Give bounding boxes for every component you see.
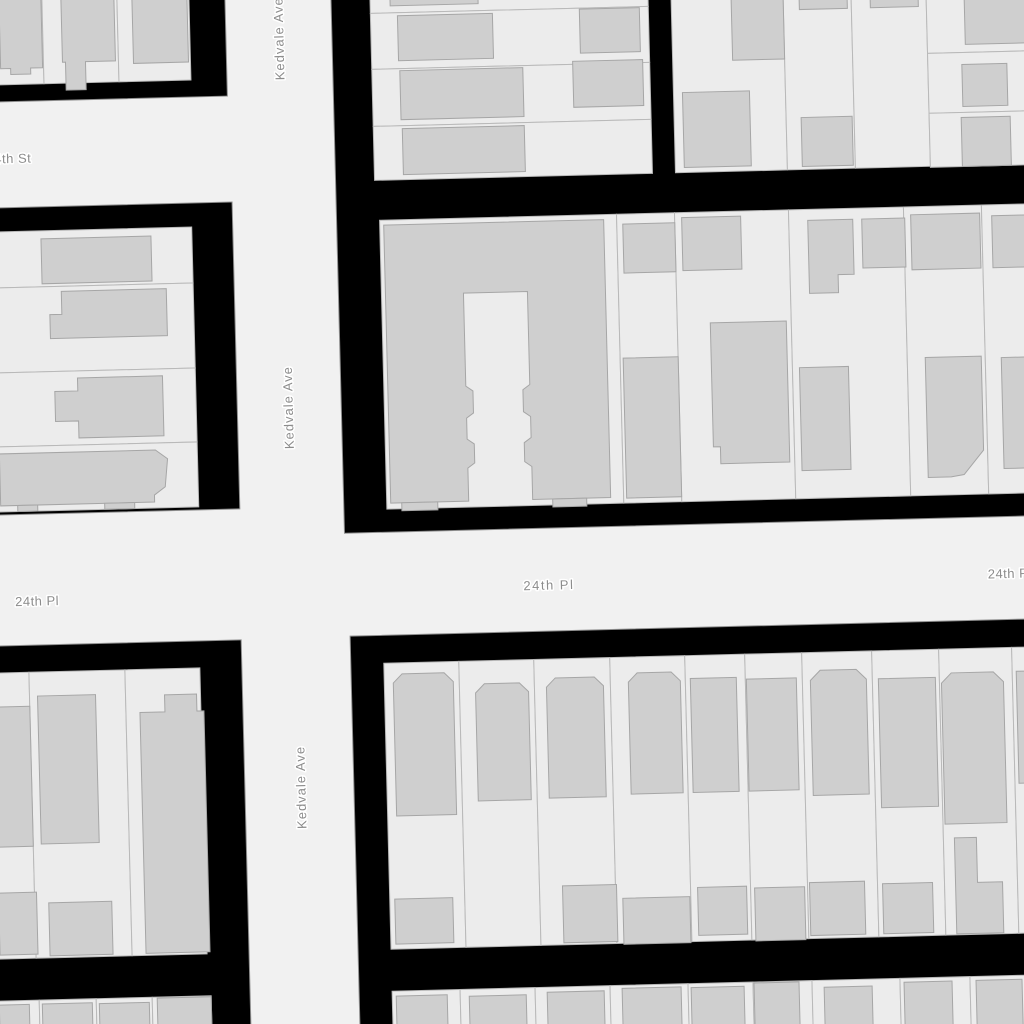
building [824, 986, 873, 1024]
building [622, 987, 682, 1024]
building [0, 892, 38, 955]
building [698, 886, 748, 935]
street-label: Kedvale Ave [280, 366, 297, 449]
building [41, 236, 152, 284]
street-label: 24th Pl [523, 577, 574, 593]
building [862, 218, 906, 268]
building [0, 450, 169, 506]
building [42, 1003, 94, 1024]
map-canvas[interactable]: 24th StKedvale AveKedvale AveKedvale Ave… [0, 0, 1024, 1024]
building [809, 881, 865, 935]
building [573, 60, 644, 108]
building [1001, 357, 1024, 469]
building [976, 979, 1023, 1024]
building [395, 898, 454, 944]
building [925, 356, 984, 477]
parcel [850, 0, 930, 168]
building [469, 995, 527, 1024]
building [99, 1002, 151, 1024]
building [628, 672, 683, 794]
building [869, 0, 918, 8]
building [546, 677, 606, 798]
city-block-northwest [0, 0, 227, 103]
building [397, 13, 493, 60]
building [140, 694, 211, 954]
building [941, 672, 1007, 825]
building [992, 215, 1024, 268]
building [38, 695, 100, 844]
building [396, 995, 448, 1024]
building [904, 981, 953, 1024]
building [690, 677, 739, 792]
building [547, 991, 605, 1024]
city-block-northeast [330, 0, 1024, 533]
building [799, 366, 851, 470]
building [755, 887, 806, 941]
building [691, 986, 745, 1024]
building [682, 216, 742, 270]
building [962, 63, 1008, 106]
building [0, 706, 33, 847]
building [49, 289, 167, 339]
building [402, 502, 438, 511]
street-label: 24th Pl [15, 593, 59, 609]
building [746, 678, 799, 791]
building [18, 505, 38, 512]
building [911, 213, 981, 270]
building [400, 68, 524, 120]
street-label: 24th St [0, 151, 31, 167]
building [579, 8, 640, 54]
building [623, 223, 676, 273]
building [961, 116, 1011, 166]
street-label: 24th Pl [988, 565, 1024, 581]
building [157, 997, 213, 1024]
building [0, 1004, 31, 1024]
street-label: Kedvale Ave [292, 746, 309, 829]
building [682, 91, 751, 168]
building [801, 116, 853, 166]
building [798, 0, 847, 10]
building [810, 669, 869, 795]
building [754, 982, 800, 1024]
building [710, 321, 790, 464]
building [878, 677, 938, 807]
building [623, 357, 682, 498]
map-render-surface: 24th StKedvale AveKedvale AveKedvale Ave… [0, 0, 1024, 1024]
street-label: Kedvale Ave [270, 0, 287, 80]
building [963, 0, 1024, 44]
building [132, 0, 189, 63]
building [623, 897, 691, 945]
city-block-southwest [0, 640, 252, 1024]
building [475, 683, 531, 801]
building [49, 901, 113, 956]
building [883, 882, 934, 933]
building [393, 673, 457, 816]
building [0, 0, 43, 75]
building [730, 0, 784, 60]
building [553, 498, 587, 507]
building [402, 126, 525, 175]
city-block-west-mid [0, 202, 240, 516]
building [562, 884, 617, 942]
building [105, 503, 135, 510]
city-block-southeast [350, 618, 1024, 1024]
